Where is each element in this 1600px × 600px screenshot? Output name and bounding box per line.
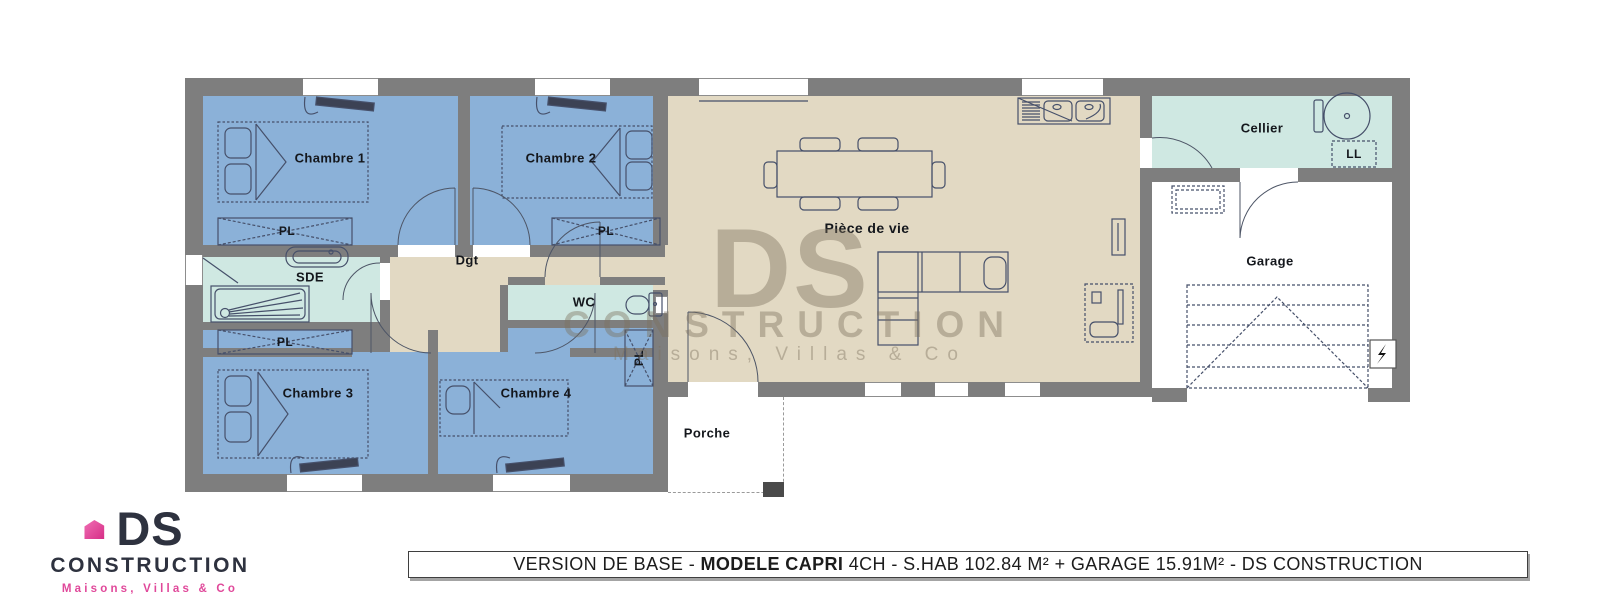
kitchen-sink-icon — [1018, 98, 1110, 124]
garage-window-icon — [1172, 186, 1224, 213]
room-label-chambre-4: Chambre 4 — [501, 386, 572, 401]
plan-banner: VERSION DE BASE - MODELE CAPRI 4CH - S.H… — [408, 551, 1528, 578]
logo-company: CONSTRUCTION — [50, 552, 249, 579]
room-label-sde: SDE — [296, 270, 324, 285]
logo-brand: DS — [116, 505, 183, 552]
washer-label: LL — [1346, 147, 1361, 161]
closet-label: PL — [632, 350, 646, 366]
closet-label: PL — [598, 224, 614, 238]
room-label-wc: WC — [573, 295, 595, 310]
closet-label: PL — [279, 224, 295, 238]
logo-tagline: Maisons, Villas & Co — [62, 583, 238, 597]
floor-plan-page: { "colors": { "wall": "#7e7e7e", "bedroo… — [0, 0, 1600, 600]
banner-suffix: 4CH - S.HAB 102.84 M² + GARAGE 15.91M² -… — [843, 554, 1422, 575]
washbasin-icon — [286, 247, 348, 267]
banner-prefix: VERSION DE BASE - — [513, 554, 700, 575]
desk-icon — [1085, 284, 1133, 342]
double-bed-icon — [218, 370, 368, 458]
garage-door-icon — [1187, 285, 1368, 388]
room-label-garage: Garage — [1246, 254, 1293, 269]
shower-icon — [211, 286, 309, 322]
room-label-porche: Porche — [684, 426, 730, 441]
banner-model: MODELE CAPRI — [701, 554, 844, 575]
room-label-chambre-2: Chambre 2 — [526, 151, 597, 166]
radiator-icon — [1112, 219, 1125, 255]
room-label-piece-de-vie: Pièce de vie — [825, 220, 910, 236]
room-label-dgt: Dgt — [456, 253, 479, 268]
electrical-panel-icon — [1370, 340, 1396, 368]
sofa-icon — [878, 252, 1008, 345]
room-label-cellier: Cellier — [1241, 121, 1284, 136]
closet-label: PL — [277, 335, 293, 349]
logo-brand-text: DS — [116, 502, 183, 555]
dining-table-icon — [764, 138, 945, 210]
furniture-layer — [0, 0, 1600, 600]
door-swing-arcs — [343, 137, 1298, 382]
room-label-chambre-1: Chambre 1 — [295, 151, 366, 166]
water-heater-icon — [1314, 93, 1370, 139]
toilet-icon — [626, 293, 662, 316]
room-label-chambre-3: Chambre 3 — [283, 386, 354, 401]
